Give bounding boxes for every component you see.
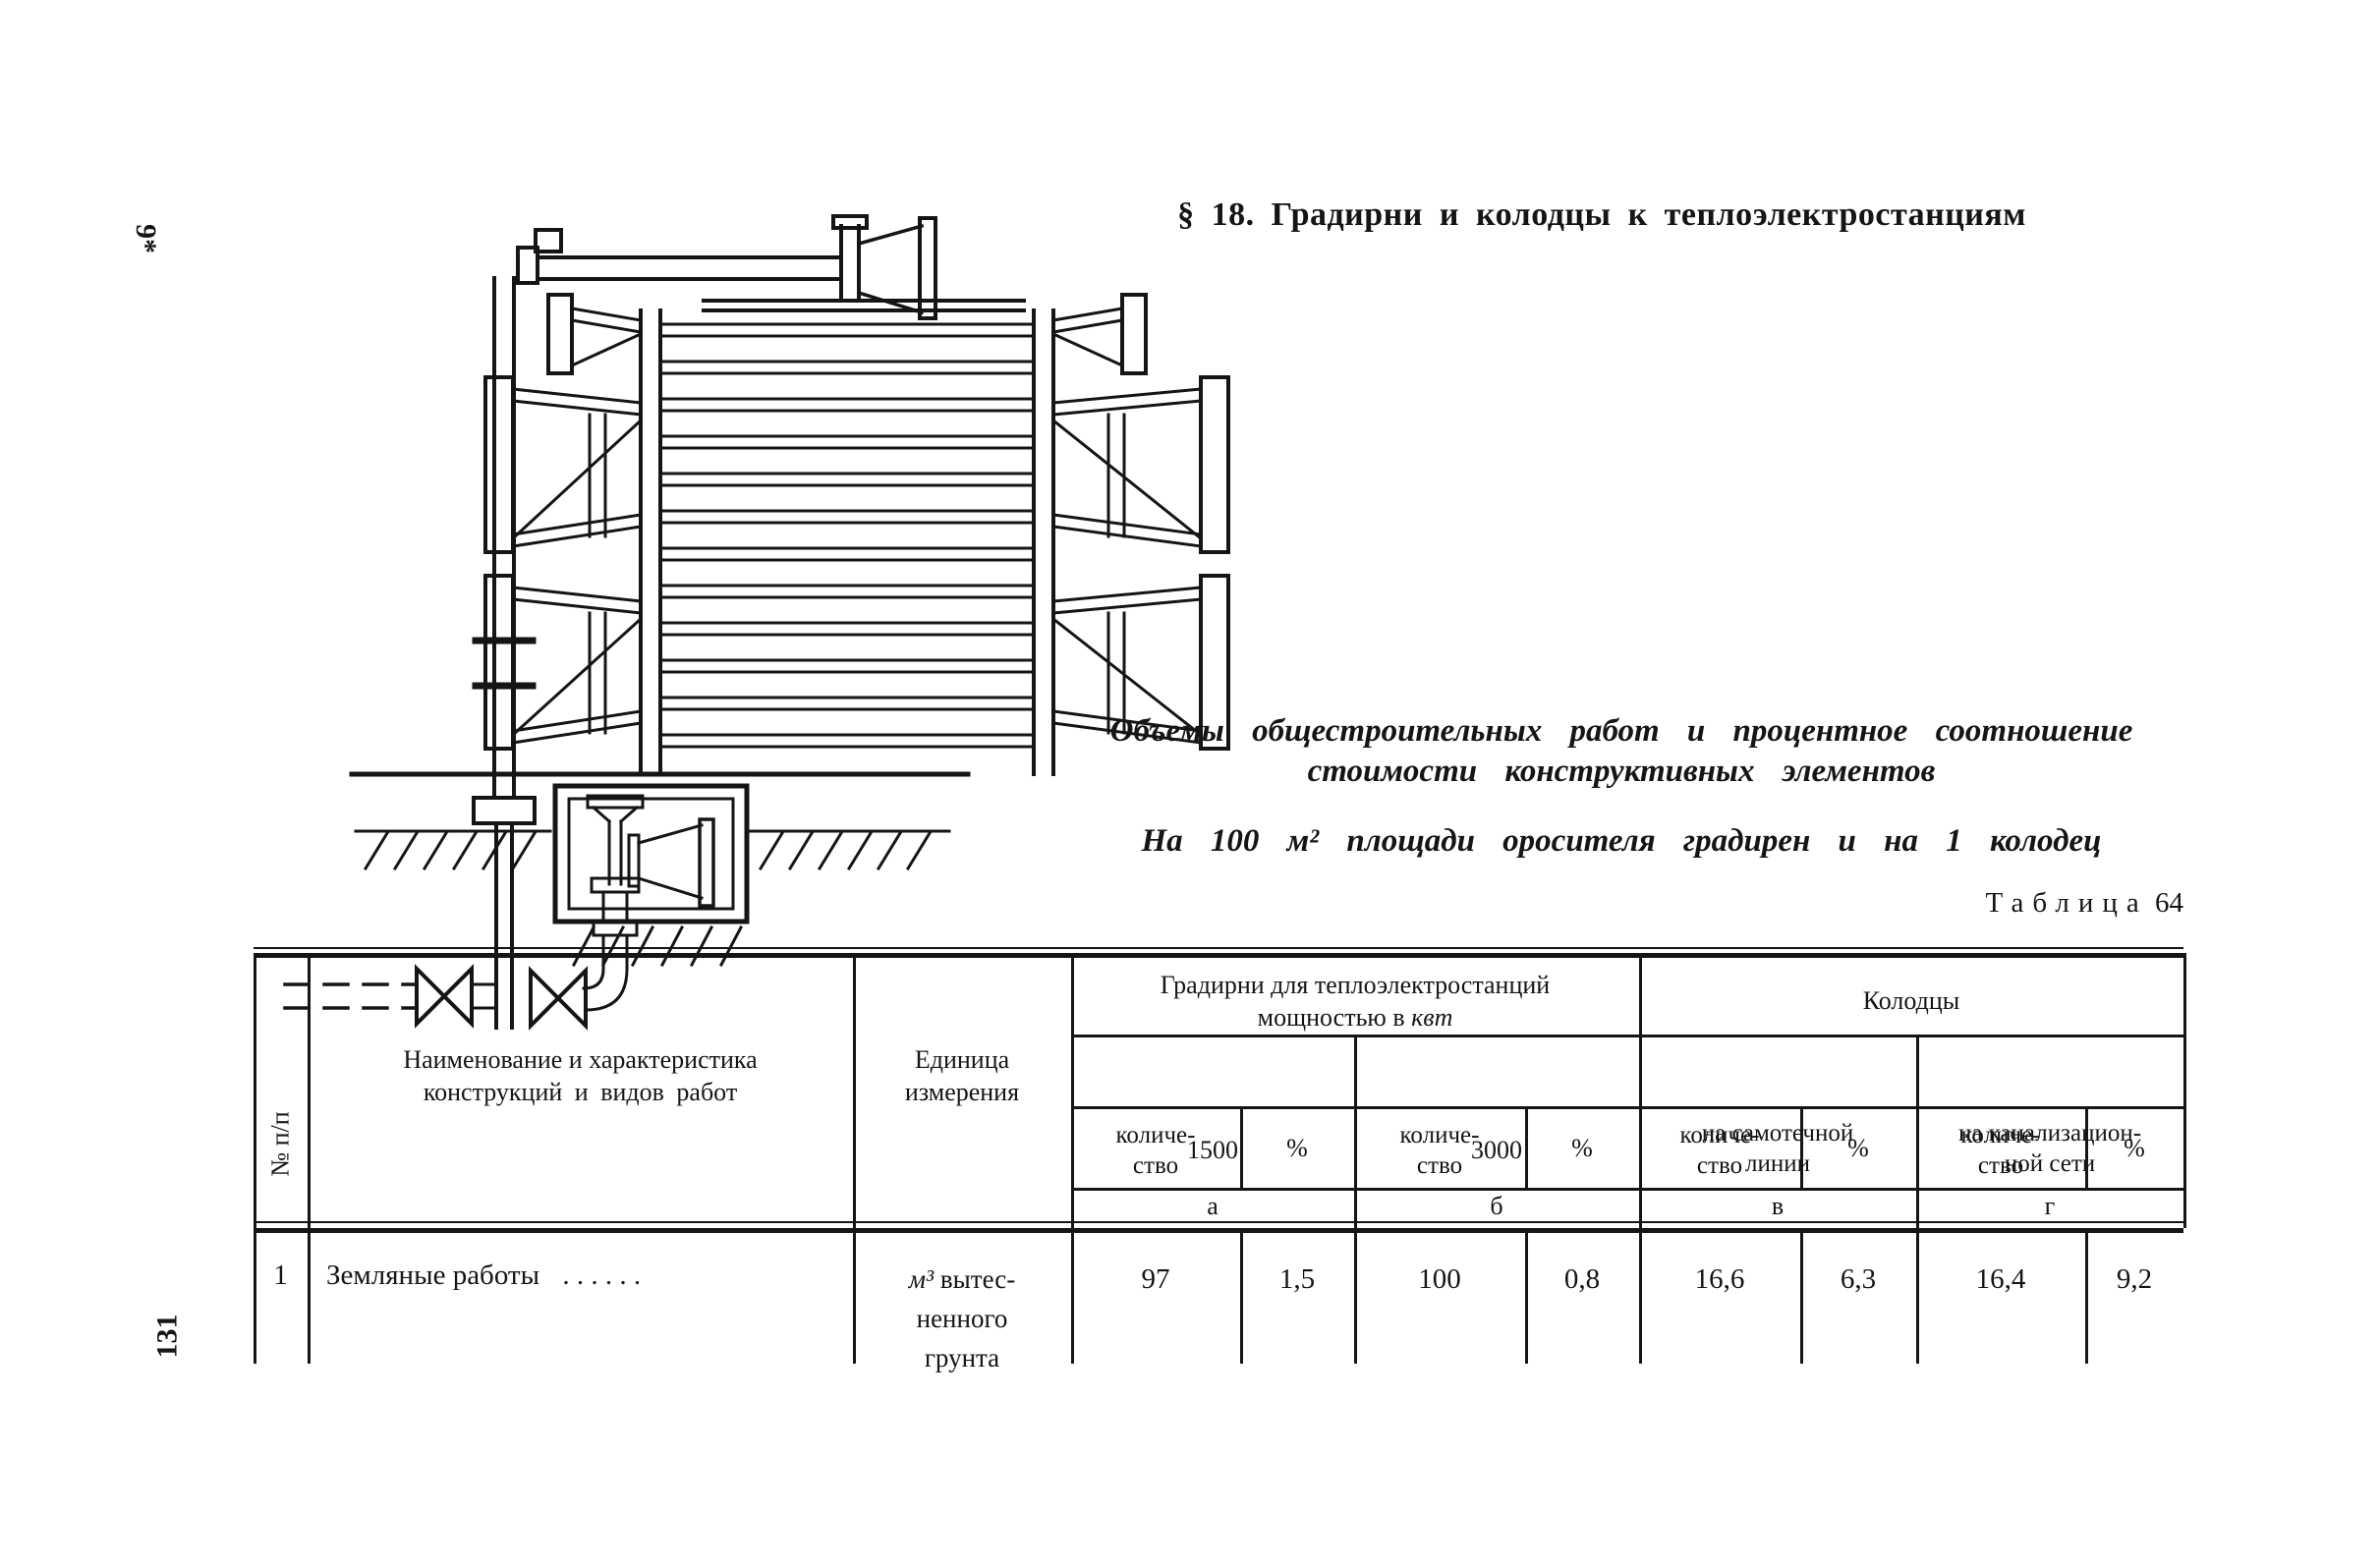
subheader-qty-1: количе- ство (1071, 1120, 1240, 1181)
group-header-kolodtsy: Колодцы (1639, 984, 2183, 1017)
row-unit-line2: ненного (853, 1299, 1071, 1338)
column-letter-v: в (1639, 1192, 1916, 1221)
subheader-pct-4: % (2085, 1132, 2183, 1164)
row-unit: м³ вытес- ненного грунта (853, 1259, 1071, 1377)
group-header-gradirni-line1: Градирни для теплоэлектростанций (1071, 969, 1639, 1001)
column-header-name: Наименование и характеристика конструкци… (308, 1043, 853, 1108)
table-rule (254, 947, 2183, 949)
table-rule (1525, 1228, 1528, 1364)
column-header-num: № п/п (264, 1111, 297, 1176)
table-rule (254, 1228, 2183, 1233)
row-unit-rest: вытес- (940, 1264, 1015, 1294)
underground-chamber (555, 786, 747, 935)
tower-lattice (641, 301, 1053, 774)
cell-value: 9,2 (2085, 1263, 2183, 1296)
column-letter-a: а (1071, 1192, 1354, 1221)
column-header-unit-line1: Единица (853, 1043, 1071, 1076)
group-header-gradirni-line2: мощностью в квт (1071, 1001, 1639, 1034)
qty-line1: количе- (1071, 1120, 1240, 1150)
table-rule (1240, 1228, 1243, 1364)
signature-mark-wrap: 9* (116, 195, 175, 283)
table-label-word: Таблица (1985, 887, 2147, 919)
row-name-dot-leader: . . . . . . (562, 1259, 641, 1291)
table-label: Таблица 64 (1867, 887, 2183, 920)
gradirni-power-pre: мощностью в (1258, 1003, 1412, 1032)
subheader-qty-2: количе- ство (1354, 1120, 1525, 1181)
qty-line1: количе- (1916, 1120, 2085, 1150)
qty-line1: количе- (1354, 1120, 1525, 1150)
cell-value: 6,3 (1800, 1263, 1916, 1296)
qty-line2: ство (1071, 1150, 1240, 1181)
column-header-name-line2: конструкций и видов работ (308, 1076, 853, 1108)
subheader-pct-1: % (1240, 1132, 1354, 1164)
row-name: Земляные работы . . . . . . (326, 1259, 847, 1292)
column-header-num-wrap: № п/п (254, 1061, 308, 1226)
subheader-qty-4: количе- ство (1916, 1120, 2085, 1181)
qty-line2: ство (1639, 1150, 1800, 1181)
page-number: 131 (150, 1315, 184, 1359)
column-letter-b: б (1354, 1192, 1639, 1221)
table-label-number: 64 (2155, 887, 2183, 919)
cell-value: 97 (1071, 1263, 1240, 1296)
ground-and-hatching (352, 774, 968, 965)
column-header-unit-line2: измерения (853, 1076, 1071, 1108)
row-name-text: Земляные работы (326, 1259, 539, 1291)
cell-value: 16,4 (1916, 1263, 2085, 1296)
table-rule (308, 953, 311, 1364)
table-rule (2085, 1228, 2088, 1364)
cell-value: 0,8 (1525, 1263, 1639, 1296)
row-unit-line1: м³ вытес- (853, 1259, 1071, 1299)
top-distribution-pipe (518, 216, 935, 318)
table-rule (1071, 1106, 2183, 1109)
subheader-pct-2: % (1525, 1132, 1639, 1164)
gradirni-power-unit: квт (1411, 1003, 1452, 1032)
cooling-tower-technical-drawing (265, 192, 1238, 1056)
table-rule (254, 1221, 2183, 1223)
column-header-name-line1: Наименование и характеристика (308, 1043, 853, 1076)
cell-value: 1,5 (1240, 1263, 1354, 1296)
table-rule (2183, 953, 2186, 1228)
subheader-pct-3: % (1800, 1132, 1916, 1164)
page-number-wrap: 131 (138, 1287, 197, 1385)
group-header-gradirni: Градирни для теплоэлектростанций мощност… (1071, 969, 1639, 1034)
qty-line1: количе- (1639, 1120, 1800, 1150)
column-letter-g: г (1916, 1192, 2183, 1221)
scanned-book-page: 9* 131 § 18. Градирни и колодцы к теплоэ… (0, 0, 2380, 1567)
row-num: 1 (254, 1259, 308, 1292)
cell-value: 100 (1354, 1263, 1525, 1296)
qty-line2: ство (1354, 1150, 1525, 1181)
subheader-qty-3: количе- ство (1639, 1120, 1800, 1181)
row-unit-symbol: м³ (909, 1264, 934, 1294)
table-rule (1071, 1188, 2183, 1191)
qty-line2: ство (1916, 1150, 2085, 1181)
column-header-unit: Единица измерения (853, 1043, 1071, 1108)
signature-mark: 9* (129, 224, 162, 253)
table-rule (254, 953, 2183, 958)
table-rule (1800, 1228, 1803, 1364)
row-unit-line3: грунта (853, 1338, 1071, 1377)
cell-value: 16,6 (1639, 1263, 1800, 1296)
table-rule (1071, 1035, 2183, 1037)
